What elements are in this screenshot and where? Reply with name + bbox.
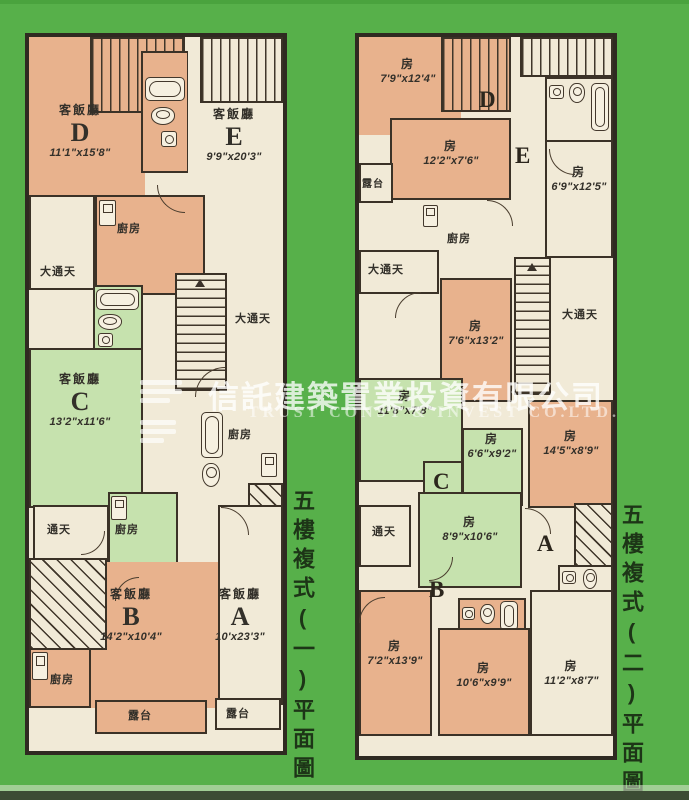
kitchen-sink-icon <box>32 652 48 680</box>
room-type-label: 房 <box>572 163 586 180</box>
balcony-label: 露台 <box>226 705 250 721</box>
toilet-icon <box>569 83 585 103</box>
page-top-edge <box>0 0 689 4</box>
room-dim-label: 14'2"x10'4" <box>100 631 162 643</box>
room-labels: 房 14'5"x8'9" <box>531 427 611 457</box>
room-type-label: 客飯廳 <box>110 585 152 602</box>
kitchen-label: 廚房 <box>50 671 74 687</box>
stairs-top-e <box>200 37 283 103</box>
basin-icon <box>98 333 113 347</box>
balcony-label: 露台 <box>362 175 384 190</box>
room-dim-label: 7'9"x12'4" <box>380 73 435 85</box>
lightwell-label: 大通天 <box>235 310 271 326</box>
bathtub-icon <box>201 412 223 458</box>
kitchen-label: 廚房 <box>117 220 141 236</box>
plan1-title: 五樓複式(一)平面圖 <box>291 489 313 785</box>
room-dim-label: 10'6"x9'9" <box>456 677 511 689</box>
stairs-top-right <box>520 37 613 77</box>
room-type-label: 客飯廳 <box>213 105 255 122</box>
room-type-label: 房 <box>564 657 578 674</box>
room-d-labels: 客飯廳 D 11'1"x15'8" <box>45 101 115 159</box>
room-type-label: 房 <box>485 430 499 447</box>
room-type-label: 房 <box>564 427 578 444</box>
unit-letter: C <box>433 469 450 495</box>
room-type-label: 客飯廳 <box>219 585 261 602</box>
room-dim-label: 10'x23'3" <box>215 631 265 643</box>
toilet-icon <box>151 107 175 125</box>
room-unit-label: C <box>71 388 90 415</box>
room-e-labels: 客飯廳 E 9'9"x20'3" <box>198 105 270 163</box>
room-dim-label: 13'2"x11'6" <box>50 416 111 428</box>
room-a-labels: 客飯廳 A 10'x23'3" <box>205 585 275 643</box>
room-dim-label: 6'6"x9'2" <box>468 448 517 460</box>
brochure-page: 客飯廳 D 11'1"x15'8" 客飯廳 E 9'9"x20'3" 客飯廳 C… <box>0 0 689 800</box>
room-type-label: 客飯廳 <box>59 101 101 118</box>
room-type-label: 房 <box>477 659 491 676</box>
room-dim-label: 12'2"x7'6" <box>423 155 478 167</box>
room-unit-label: A <box>231 603 250 630</box>
room-type-label: 房 <box>388 637 402 654</box>
basin-icon <box>161 131 177 147</box>
unit-letter: E <box>515 143 530 169</box>
stairs-a <box>574 503 613 567</box>
room-dim-label: 11'2"x8'7" <box>544 675 599 687</box>
door-arc <box>487 200 513 226</box>
page-bottom-edge <box>0 791 689 800</box>
kitchen-label: 廚房 <box>115 521 139 537</box>
room-labels: 房 6'9"x12'5" <box>545 163 613 193</box>
door-arc <box>395 292 421 318</box>
lightwell-small-label: 通天 <box>372 523 396 539</box>
room-type-label: 房 <box>401 55 415 72</box>
unit-letter: D <box>479 87 496 113</box>
room-c-labels: 客飯廳 C 13'2"x11'6" <box>45 370 115 428</box>
room-type-label: 客飯廳 <box>59 370 101 387</box>
room-labels: 房 10'6"x9'9" <box>438 659 530 689</box>
basin-icon <box>562 571 576 584</box>
kitchen-label: 廚房 <box>228 426 252 442</box>
toilet-icon <box>98 314 122 330</box>
toilet-icon <box>202 463 220 487</box>
unit-letter: B <box>429 577 444 603</box>
room-type-label: 房 <box>469 317 483 334</box>
room-labels: 房 7'2"x13'9" <box>359 637 431 667</box>
room-dim-label: 7'6"x13'2" <box>448 335 503 347</box>
room-b-labels: 客飯廳 B 14'2"x10'4" <box>96 585 166 643</box>
lightwell-small-label: 通天 <box>47 521 71 537</box>
stairs-top-mid <box>441 37 511 112</box>
basin-icon <box>462 607 475 620</box>
kitchen-sink-icon <box>423 205 438 227</box>
kitchen-label: 廚房 <box>447 230 471 246</box>
room-labels: 房 7'9"x12'4" <box>372 55 444 85</box>
kitchen-sink-icon <box>111 496 127 520</box>
room-labels: 房 7'6"x13'2" <box>442 317 510 347</box>
room-unit-label: D <box>71 119 90 146</box>
room-labels: 房 11'2"x8'7" <box>530 657 613 687</box>
room-dim-label: 14'5"x8'9" <box>543 445 598 457</box>
room-dim-label: 6'9"x12'5" <box>551 181 606 193</box>
bathtub-icon <box>591 83 609 131</box>
balcony-label: 露台 <box>128 707 152 723</box>
kitchen-sink-icon <box>99 200 116 226</box>
room-labels: 房 6'6"x9'2" <box>460 430 524 460</box>
room-unit-label: B <box>122 603 139 630</box>
toilet-icon <box>480 604 495 624</box>
unit-letter: A <box>537 531 554 557</box>
stair-arrow-icon <box>195 279 205 287</box>
watermark-company-en: TRUST CONST & INVEST CO.LTD. <box>248 404 620 422</box>
kitchen-sink-icon <box>261 453 277 477</box>
basin-icon <box>549 85 564 99</box>
toilet-icon <box>583 569 597 589</box>
room-dim-label: 8'9"x10'6" <box>442 531 497 543</box>
room-dim-label: 7'2"x13'9" <box>367 655 422 667</box>
room-type-label: 房 <box>463 513 477 530</box>
stair-arrow-icon <box>527 263 537 271</box>
room-type-label: 房 <box>444 137 458 154</box>
room-dim-label: 11'1"x15'8" <box>50 147 111 159</box>
room-dim-label: 9'9"x20'3" <box>206 151 261 163</box>
plan2-title: 五樓複式(二)平面圖 <box>620 503 642 799</box>
room-labels: 房 8'9"x10'6" <box>423 513 517 543</box>
bathtub-icon <box>500 601 518 631</box>
bathtub-icon <box>96 289 139 310</box>
lightwell-label: 大通天 <box>562 306 598 322</box>
room-labels: 房 12'2"x7'6" <box>415 137 487 167</box>
lightwell-label: 大通天 <box>368 261 404 277</box>
room-unit-label: E <box>225 123 242 150</box>
lightwell-label: 大通天 <box>40 263 76 279</box>
bathtub-icon <box>145 77 185 101</box>
